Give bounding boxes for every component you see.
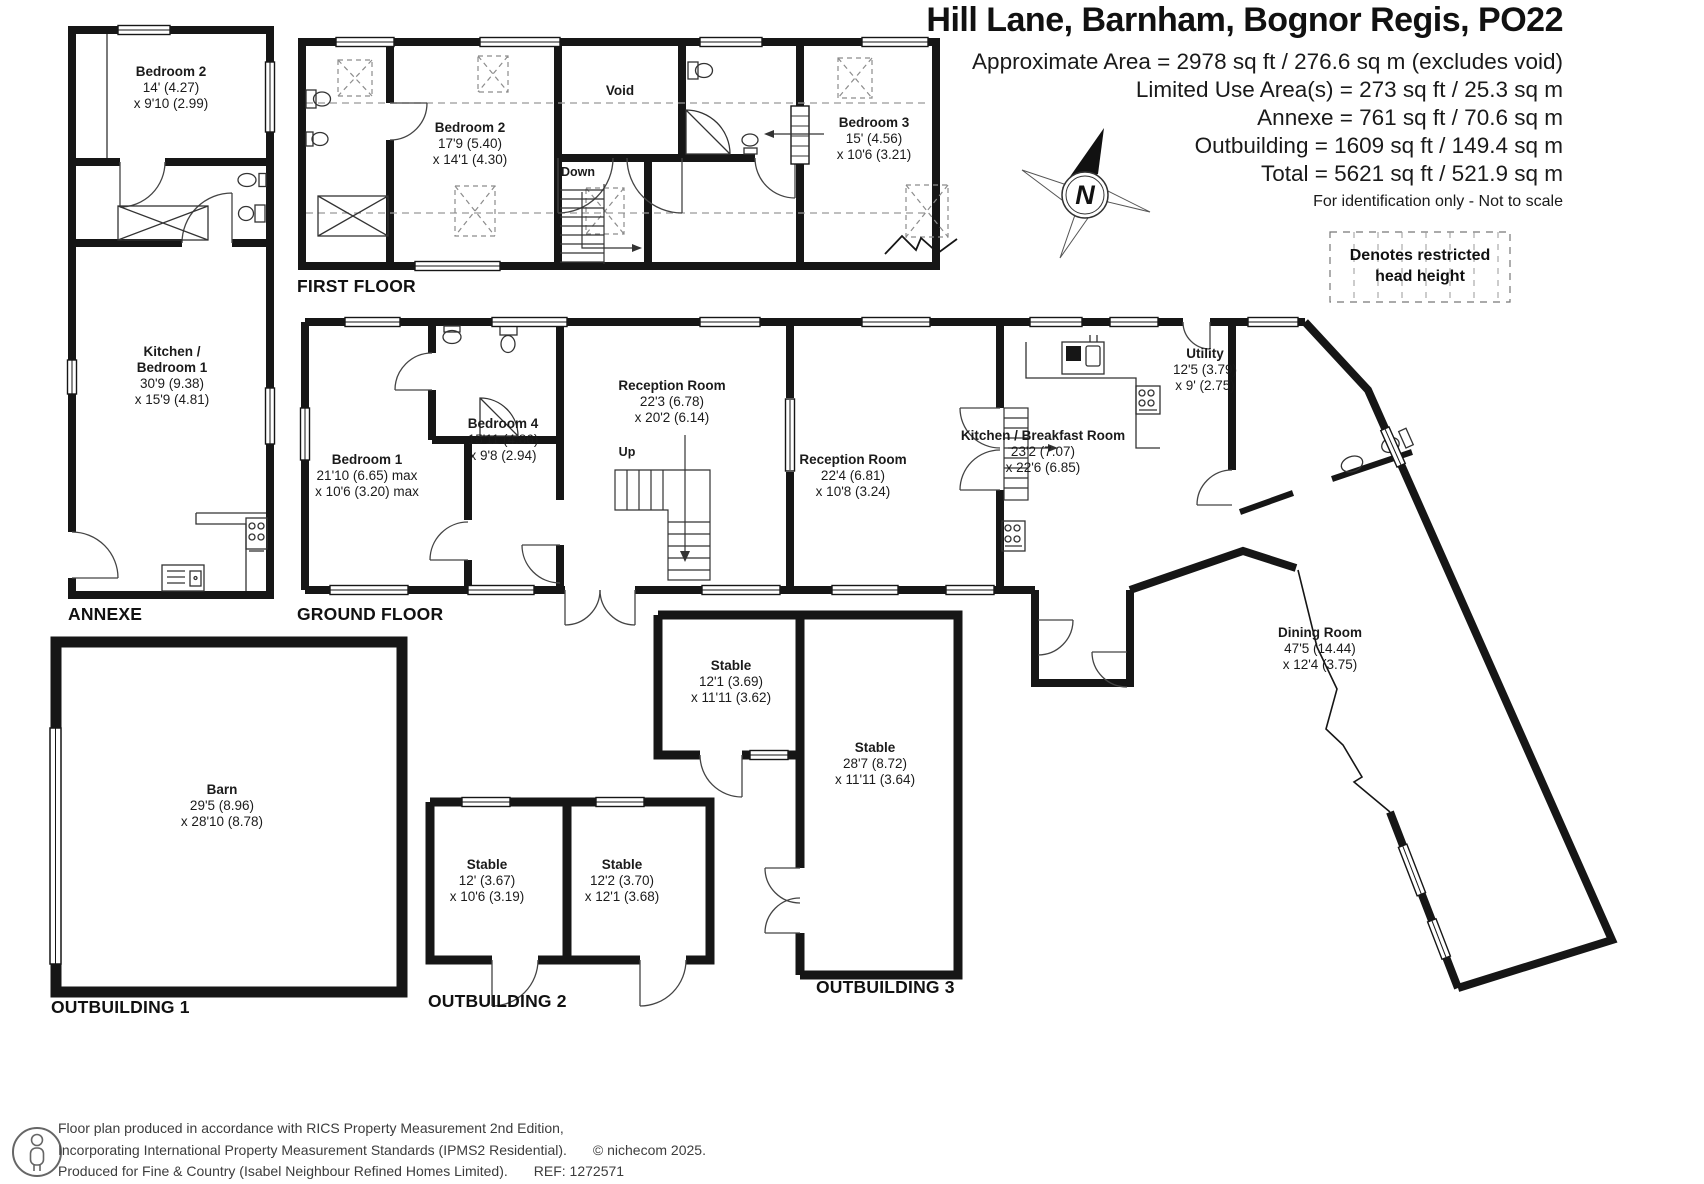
room-label-ob3-stable-large: Stable28'7 (8.72)x 11'11 (3.64) — [835, 740, 915, 788]
area-line: Limited Use Area(s) = 273 sq ft / 25.3 s… — [926, 76, 1563, 104]
section-label-outbuilding2: OUTBUILDING 2 — [428, 991, 567, 1012]
legend-label: Denotes restricted head height — [1335, 245, 1505, 287]
room-label-annexe-kitchen: Kitchen /Bedroom 1 30'9 (9.38)x 15'9 (4.… — [135, 344, 210, 408]
room-label-gf-bedroom1: Bedroom 121'10 (6.65) maxx 10'6 (3.20) m… — [315, 452, 419, 500]
stairs-down — [560, 184, 642, 264]
copyright: © nichecom 2025. — [593, 1142, 706, 1158]
internal-window — [786, 399, 795, 471]
footer-line1: Floor plan produced in accordance with R… — [58, 1118, 706, 1140]
section-label-first-floor: FIRST FLOOR — [297, 276, 416, 297]
compass-north-label: N — [1075, 180, 1095, 211]
ground-floor-doors — [395, 322, 1232, 687]
first-floor-fixtures — [306, 62, 758, 236]
room-label-barn: Barn29'5 (8.96)x 28'10 (8.78) — [181, 782, 263, 830]
footer-line2: Incorporating International Property Mea… — [58, 1140, 706, 1162]
bedroom3-wall-window — [764, 106, 824, 164]
room-label-gf-utility: Utility12'5 (3.79)x 9' (2.75) — [1173, 346, 1237, 394]
room-label-dining-room: Dining Room47'5 (14.44)x 12'4 (3.75) — [1278, 625, 1362, 673]
outbuilding3-doors — [700, 755, 800, 933]
footer: Floor plan produced in accordance with R… — [58, 1118, 706, 1183]
room-label-gf-bedroom4: Bedroom 415'11 (4.86)x 9'8 (2.94) — [468, 416, 539, 464]
section-label-outbuilding3: OUTBUILDING 3 — [816, 977, 955, 998]
floorplan-page: Hill Lane, Barnham, Bognor Regis, PO22 A… — [0, 0, 1704, 1184]
void-label: Void — [606, 83, 634, 98]
room-label-ff-bedroom3: Bedroom 315' (4.56)x 10'6 (3.21) — [837, 115, 912, 163]
area-summary: Approximate Area = 2978 sq ft / 276.6 sq… — [926, 48, 1563, 188]
room-label-ob3-stable-small: Stable12'1 (3.69)x 11'11 (3.62) — [691, 658, 771, 706]
footer-line3: Produced for Fine & Country (Isabel Neig… — [58, 1161, 706, 1183]
area-line: Outbuilding = 1609 sq ft / 149.4 sq m — [926, 132, 1563, 160]
reference-number: REF: 1272571 — [534, 1163, 624, 1179]
room-label-ob2-stable-left: Stable12' (3.67)x 10'6 (3.19) — [450, 857, 525, 905]
section-label-outbuilding1: OUTBUILDING 1 — [51, 997, 190, 1018]
room-label-ob2-stable-right: Stable12'2 (3.70)x 12'1 (3.68) — [585, 857, 660, 905]
header: Hill Lane, Barnham, Bognor Regis, PO22 A… — [926, 0, 1563, 211]
area-line: Total = 5621 sq ft / 521.9 sq m — [926, 160, 1563, 188]
section-label-annexe: ANNEXE — [68, 604, 142, 625]
dining-open-edge — [1298, 570, 1390, 812]
up-label: Up — [619, 445, 636, 459]
down-label: Down — [561, 165, 595, 179]
break-line — [885, 236, 957, 254]
area-line: Approximate Area = 2978 sq ft / 276.6 sq… — [926, 48, 1563, 76]
room-label-ff-bedroom2: Bedroom 217'9 (5.40)x 14'1 (4.30) — [433, 120, 508, 168]
page-title: Hill Lane, Barnham, Bognor Regis, PO22 — [926, 0, 1563, 40]
area-line: Annexe = 761 sq ft / 70.6 sq m — [926, 104, 1563, 132]
ground-floor-fixtures — [443, 326, 1413, 551]
person-icon — [13, 1128, 61, 1176]
section-label-ground-floor: GROUND FLOOR — [297, 604, 443, 625]
room-label-gf-reception1: Reception Room22'3 (6.78)x 20'2 (6.14) — [618, 378, 725, 426]
scale-note: For identification only - Not to scale — [926, 193, 1563, 211]
room-label-annexe-bedroom2: Bedroom 214' (4.27)x 9'10 (2.99) — [134, 64, 209, 112]
room-label-gf-reception2: Reception Room22'4 (6.81)x 10'8 (3.24) — [799, 452, 906, 500]
room-label-gf-kitchen: Kitchen / Breakfast Room23'2 (7.07)x 22'… — [961, 428, 1125, 476]
